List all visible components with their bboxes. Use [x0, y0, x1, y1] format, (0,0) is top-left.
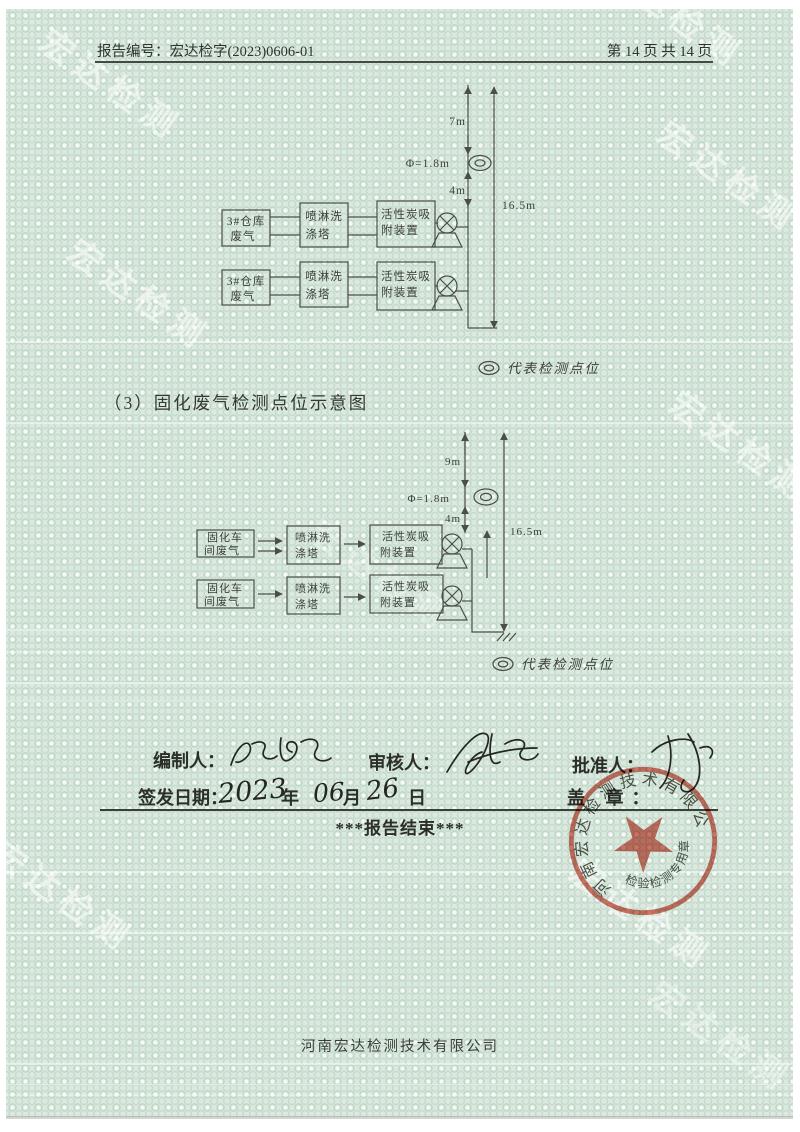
year-suffix: 年 — [281, 784, 299, 810]
d1-source-label: 废气 — [231, 229, 256, 243]
diagram1-legend: 代表检测点位 — [479, 361, 600, 376]
legend-port-icon — [493, 658, 513, 671]
d2-dim-lower: 4m — [445, 513, 461, 525]
reviewer-signature — [447, 733, 538, 773]
d1-fan-2 — [432, 276, 468, 310]
d2-adsorber-label: 附装置 — [380, 545, 416, 559]
d2-source-label: 间废气 — [204, 543, 240, 557]
d1-adsorber-label: 活性炭吸 — [381, 207, 431, 221]
day-suffix: 日 — [408, 784, 426, 810]
d1-fan-1 — [432, 213, 468, 247]
d1-dim-total: 16.5m — [502, 200, 536, 212]
d2-source-label: 间废气 — [204, 594, 240, 608]
d1-adsorber-box — [377, 201, 435, 247]
d1-adsorber-label: 活性炭吸 — [381, 269, 431, 283]
d1-source-label: 3#仓库 — [227, 274, 266, 288]
company-seal: 河南宏达检测技术有限公司 检验检测专用章 — [551, 749, 735, 933]
d1-scrubber-label: 喷淋洗 — [305, 210, 343, 223]
d2-source-label: 固化车 — [207, 581, 243, 595]
d1-dim-upper: 7m — [449, 116, 466, 128]
d2-scrubber-label: 涤塔 — [295, 546, 319, 560]
month-suffix: 月 — [343, 784, 361, 810]
seal-graphics: 河南宏达检测技术有限公司 检验检测专用章 — [551, 749, 735, 933]
d1-scrubber-label: 涤塔 — [306, 227, 331, 241]
d1-sampling-port-icon — [469, 156, 491, 171]
issue-month-handwritten: 06 — [312, 777, 346, 808]
d1-dim-lower: 4m — [449, 185, 466, 197]
page-edge-shadow — [6, 1116, 793, 1119]
d1-scrubber-label: 涤塔 — [306, 287, 331, 301]
reviewer-label: 审核人： — [368, 749, 440, 775]
d2-adsorber-label: 附装置 — [380, 595, 416, 609]
d2-dim-total: 16.5m — [510, 526, 543, 538]
d2-scrubber-label: 涤塔 — [295, 597, 319, 611]
d2-legend-label: 代表检测点位 — [521, 657, 614, 672]
footer-company-name: 河南宏达检测技术有限公司 — [0, 1035, 800, 1056]
d1-source-label: 3#仓库 — [227, 214, 266, 228]
d2-duct-line — [472, 549, 504, 632]
d1-source-label: 废气 — [231, 289, 256, 303]
d2-scrubber-label: 喷淋洗 — [295, 531, 331, 544]
legend-port-icon — [479, 362, 499, 375]
preparer-label: 编制人： — [153, 747, 225, 773]
d2-adsorber-label: 活性炭吸 — [382, 579, 430, 593]
diagram2-legend: 代表检测点位 — [493, 657, 614, 672]
diagram2-solidification-gas — [197, 432, 516, 641]
d2-source-label: 固化车 — [207, 530, 243, 544]
issue-year-handwritten: 2023 — [217, 773, 288, 810]
preparer-signature — [231, 738, 331, 765]
d2-ground-hatch — [497, 633, 516, 641]
scanned-report-page: 宏达检测 宏达检测 宏达检测 宏达检测 宏达检测 宏达检测 宏达检测 宏达检测 … — [0, 0, 800, 1132]
diagrams-layer: 3#仓库 废气 喷淋洗 涤塔 活性炭吸 附装置 3#仓库 废气 喷淋洗 涤塔 活… — [0, 0, 800, 1132]
d2-dim-diameter: Φ=1.8m — [407, 493, 450, 505]
d2-scrubber-label: 喷淋洗 — [295, 582, 331, 595]
d1-scrubber-label: 喷淋洗 — [305, 270, 343, 283]
d2-adsorber-label: 活性炭吸 — [382, 529, 430, 543]
d2-fan-2 — [437, 586, 472, 620]
d1-adsorber-label: 附装置 — [381, 223, 419, 237]
d1-adsorber-label: 附装置 — [381, 285, 419, 299]
d1-legend-label: 代表检测点位 — [507, 361, 600, 376]
d2-dim-upper: 9m — [445, 456, 461, 468]
diagram2-labels: 固化车 间废气 喷淋洗 涤塔 活性炭吸 附装置 固化车 间废气 喷淋洗 涤塔 活… — [204, 456, 543, 611]
issue-date-label: 签发日期： — [138, 784, 228, 810]
diagram1-labels: 3#仓库 废气 喷淋洗 涤塔 活性炭吸 附装置 3#仓库 废气 喷淋洗 涤塔 活… — [227, 116, 536, 303]
issue-day-handwritten: 26 — [364, 773, 401, 807]
d1-adsorber-box — [377, 262, 435, 310]
d1-stack-line — [468, 85, 497, 328]
d1-dim-diameter: Φ=1.8m — [406, 158, 450, 170]
d2-sampling-port-icon — [474, 489, 498, 505]
